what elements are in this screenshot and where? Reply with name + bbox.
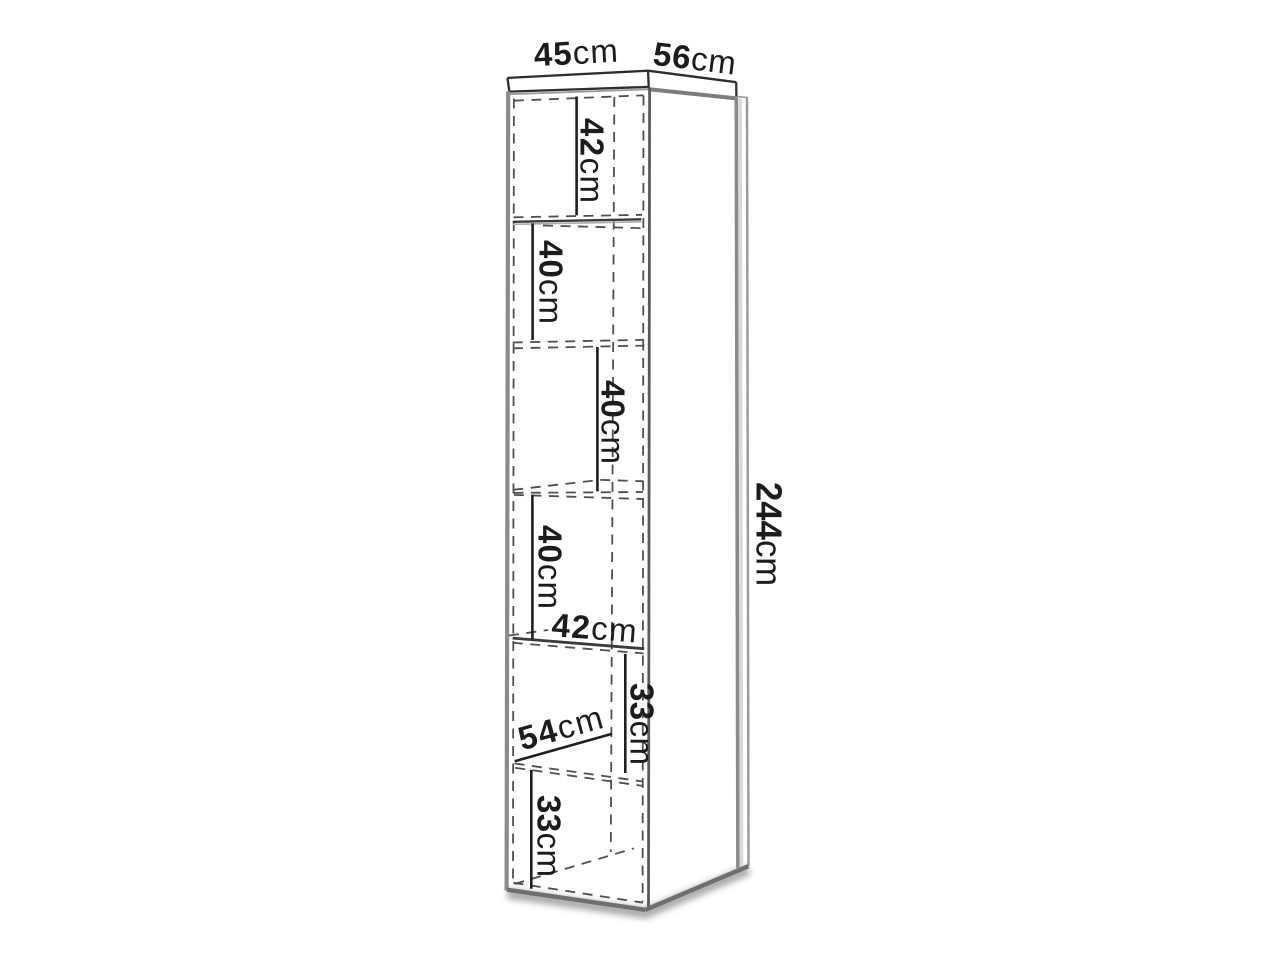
svg-text:244cm: 244cm bbox=[748, 482, 788, 586]
svg-text:42cm: 42cm bbox=[574, 118, 611, 203]
svg-text:33cm: 33cm bbox=[623, 683, 660, 765]
svg-text:40cm: 40cm bbox=[533, 240, 570, 324]
svg-text:33cm: 33cm bbox=[530, 795, 567, 877]
svg-text:42cm: 42cm bbox=[550, 606, 638, 649]
svg-text:45cm: 45cm bbox=[533, 32, 619, 74]
svg-text:40cm: 40cm bbox=[532, 525, 569, 609]
svg-text:40cm: 40cm bbox=[594, 380, 631, 464]
